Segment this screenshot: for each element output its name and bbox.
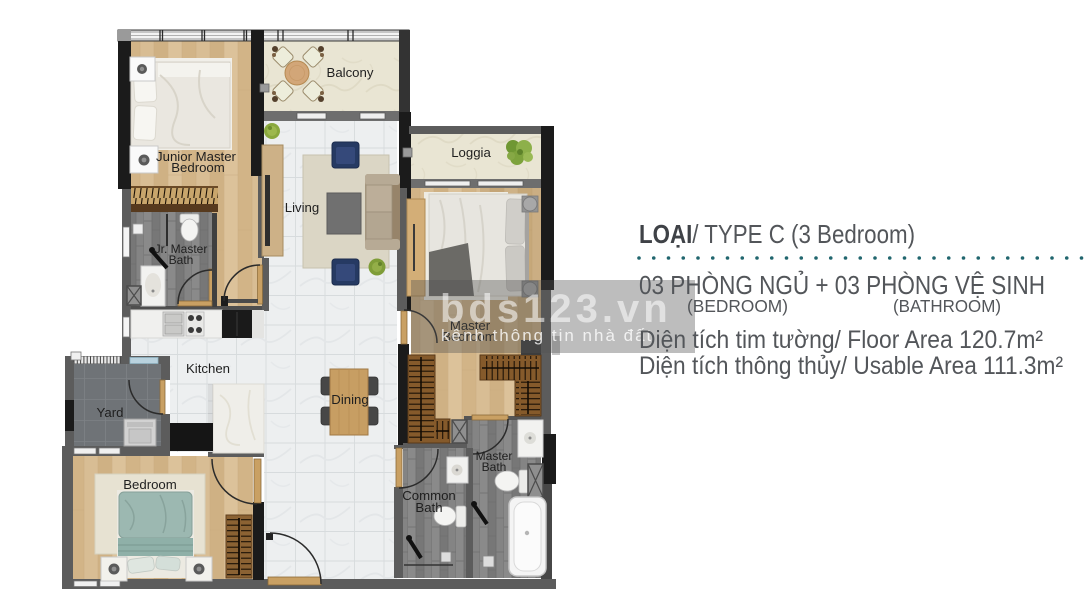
svg-text:kênh thông tin nhà đất: kênh thông tin nhà đất	[441, 326, 653, 345]
svg-text:Diện tích thông thủy/ Usable A: Diện tích thông thủy/ Usable Area 111.3m…	[639, 352, 1063, 380]
svg-text:Bath: Bath	[415, 500, 442, 515]
svg-text:(BATHROOM): (BATHROOM)	[893, 296, 1001, 316]
svg-text:Yard: Yard	[97, 405, 124, 420]
svg-text:(BEDROOM): (BEDROOM)	[687, 296, 788, 316]
svg-text:Kitchen: Kitchen	[186, 361, 230, 376]
svg-text:Diện tích tim tường/ Floor Are: Diện tích tim tường/ Floor Area 120.7m²	[639, 326, 1043, 354]
svg-text:Dining: Dining	[331, 392, 368, 407]
svg-text:Bedroom: Bedroom	[123, 477, 177, 492]
svg-text:bds123.vn: bds123.vn	[440, 287, 672, 331]
svg-text:Loggia: Loggia	[451, 145, 491, 160]
svg-text:Bath: Bath	[169, 253, 194, 267]
svg-text:Balcony: Balcony	[327, 65, 374, 80]
svg-text:LOẠI/ TYPE C (3 Bedroom): LOẠI/ TYPE C (3 Bedroom)	[639, 219, 915, 249]
svg-text:Bedroom: Bedroom	[171, 160, 225, 175]
svg-text:Living: Living	[285, 200, 319, 215]
svg-text:Bath: Bath	[482, 460, 507, 474]
